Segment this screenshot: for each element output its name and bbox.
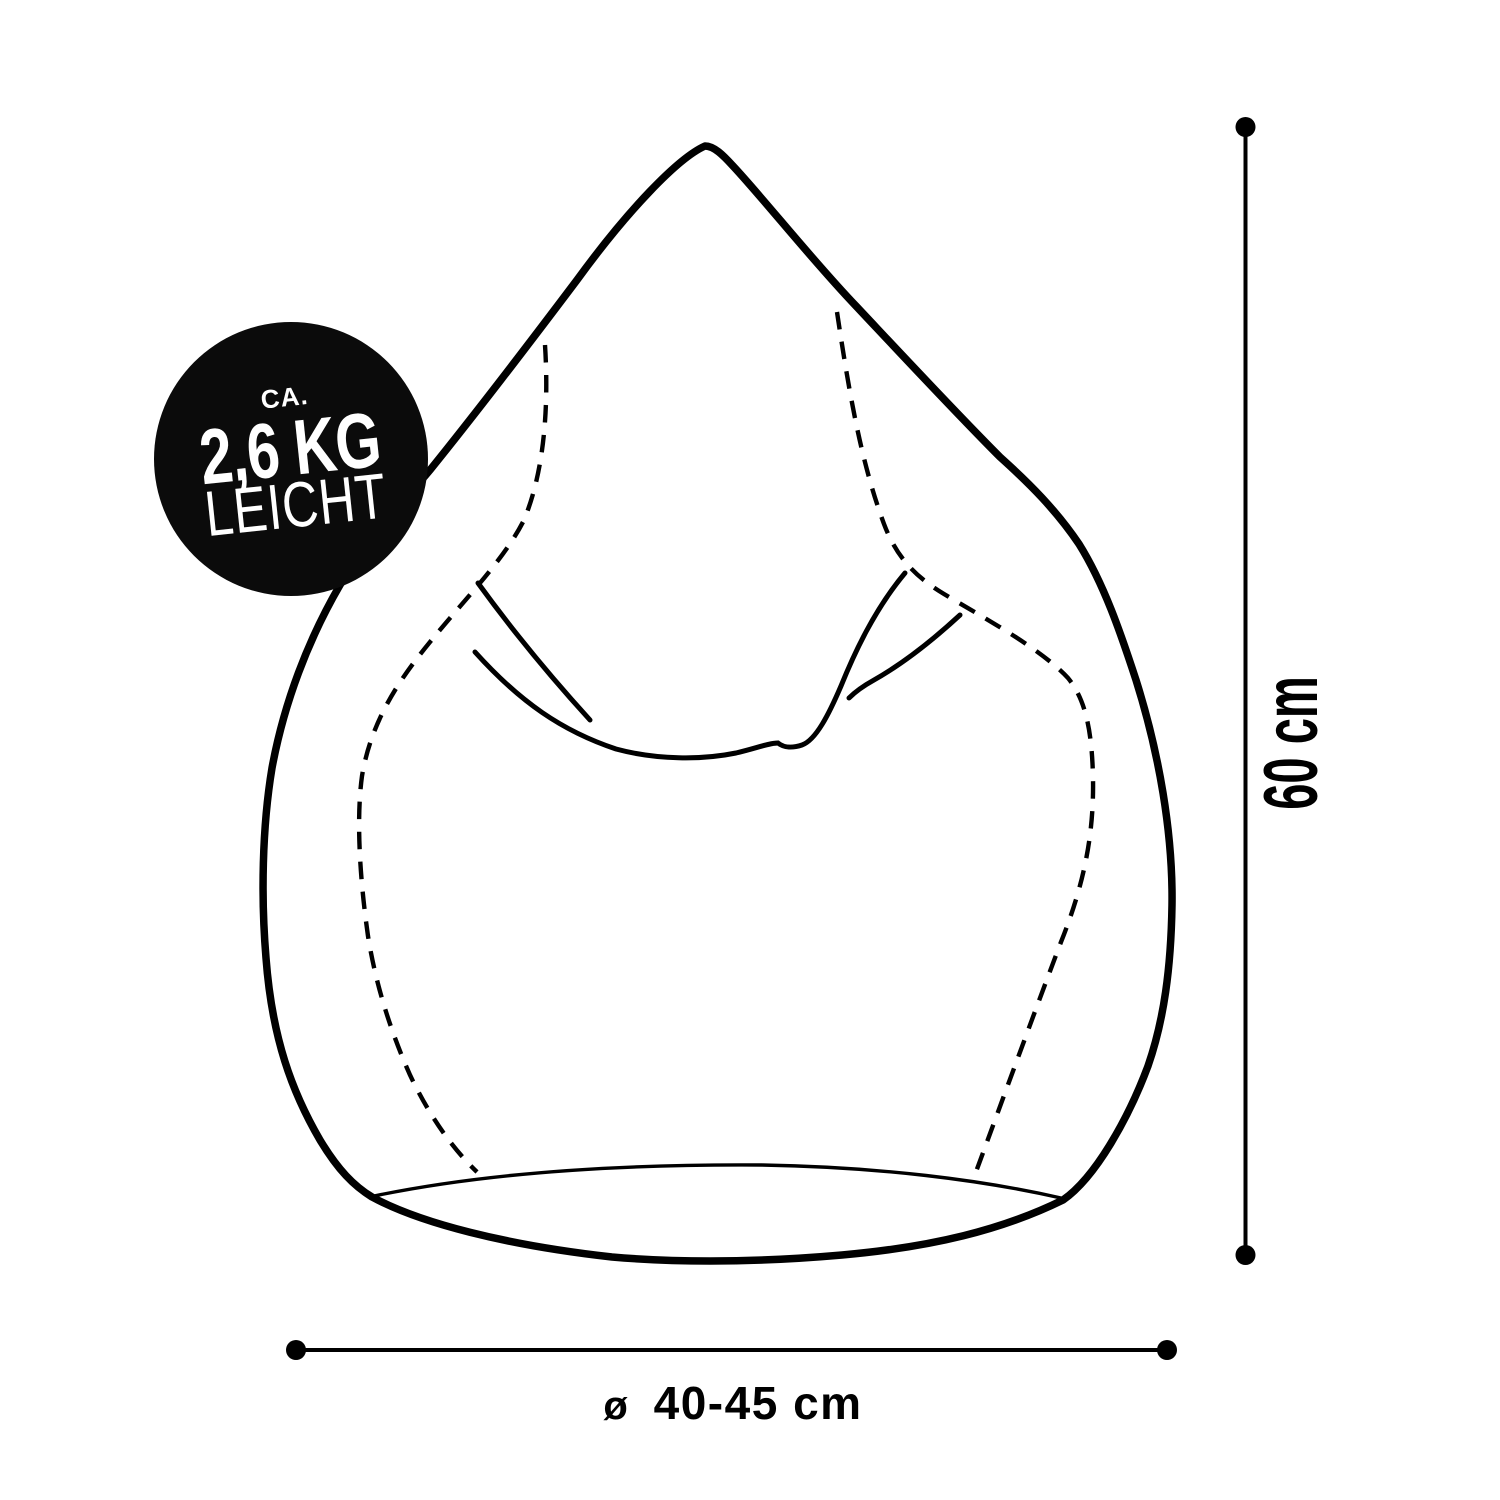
dimension-endpoint-dot-right [1157,1340,1177,1360]
diameter-symbol: ø [603,1384,629,1428]
dimension-endpoint-dot-left [286,1340,306,1360]
diameter-value: 40-45 cm [654,1377,863,1429]
weight-badge: CA. 2,6 KG LEICHT [154,322,428,596]
beanbag-diagram-canvas: 60 cm ø 40-45 cm CA. 2,6 KG LEICHT [0,0,1500,1500]
diameter-dimension: ø 40-45 cm [286,1340,1177,1429]
beanbag-outline [263,146,1172,1261]
beanbag-drawing [263,146,1172,1261]
dimension-endpoint-dot-bottom [1236,1245,1256,1265]
diameter-label: ø 40-45 cm [603,1377,862,1429]
dimension-endpoint-dot-top [1236,117,1256,137]
height-dimension: 60 cm [1236,117,1334,1265]
height-label: 60 cm [1250,676,1334,810]
product-dimension-diagram: 60 cm ø 40-45 cm CA. 2,6 KG LEICHT [0,0,1500,1500]
